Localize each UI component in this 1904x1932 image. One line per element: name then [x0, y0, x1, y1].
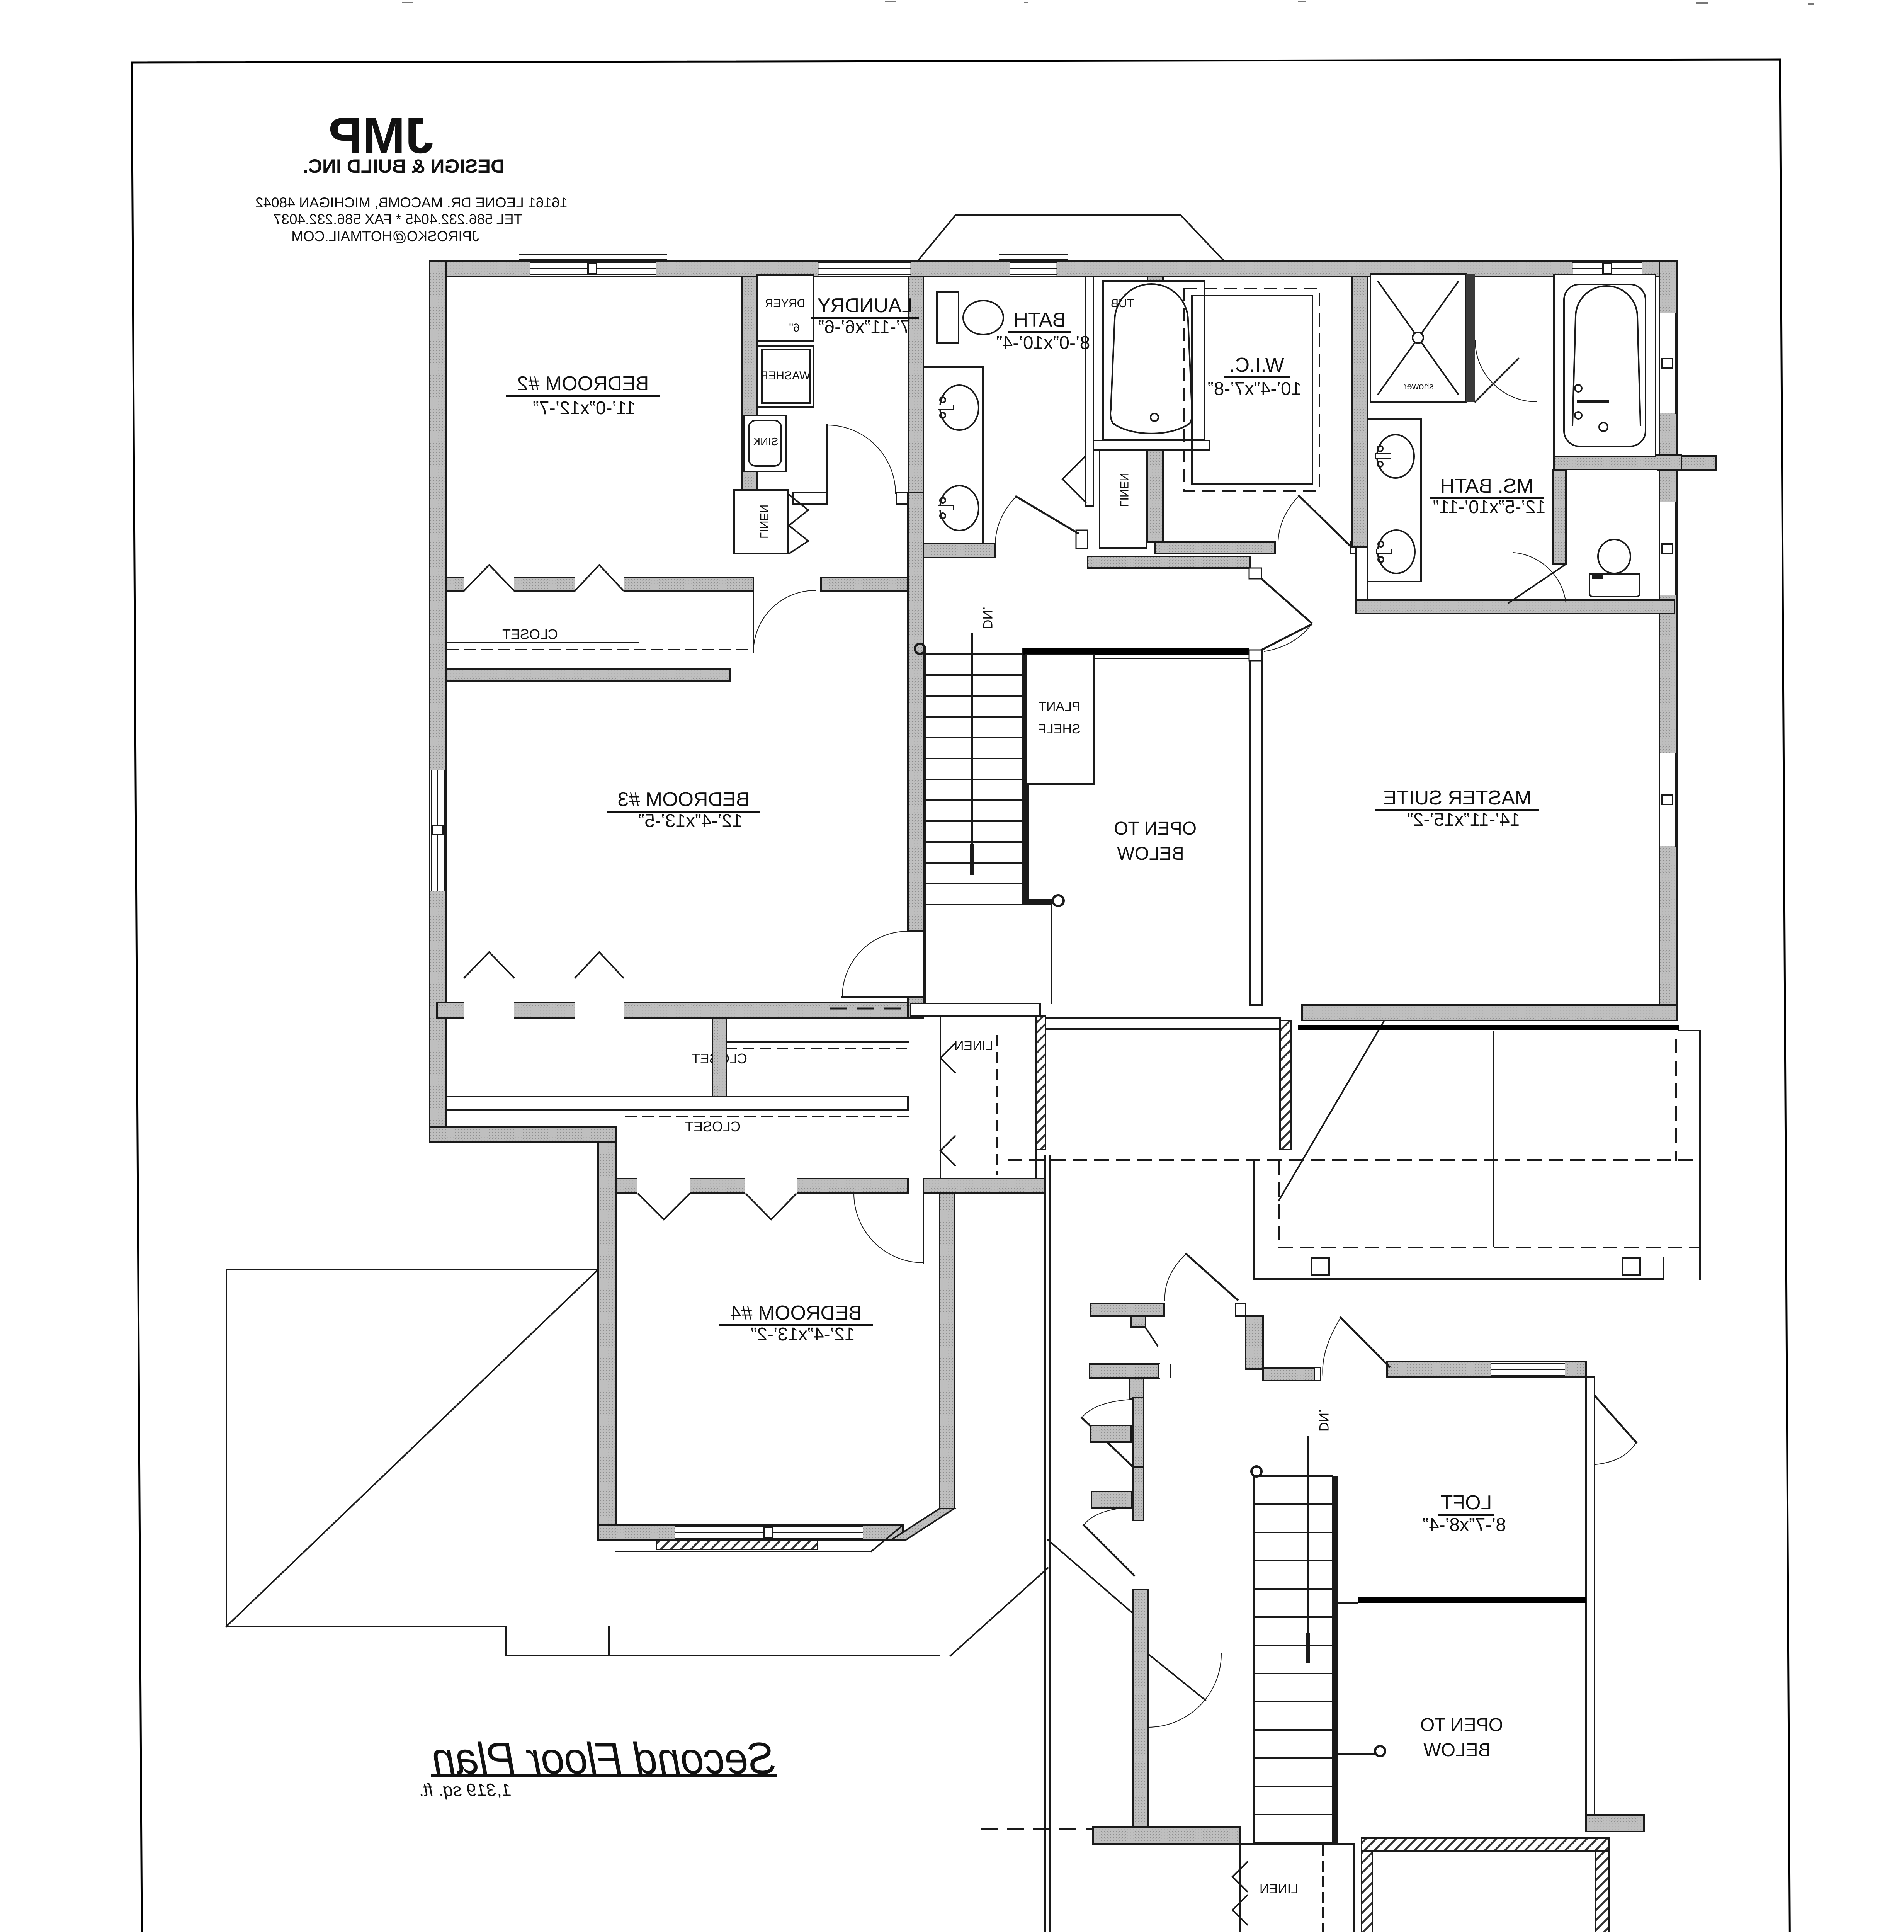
- svg-text:OPEN TO: OPEN TO: [1114, 818, 1197, 839]
- svg-text:14’-11”x15’-2”: 14’-11”x15’-2”: [1407, 810, 1520, 830]
- svg-text:6": 6": [789, 321, 799, 334]
- svg-text:PLANT: PLANT: [1038, 699, 1081, 714]
- svg-text:LAUNDRY: LAUNDRY: [817, 294, 913, 317]
- svg-text:1,319 sq. ft.: 1,319 sq. ft.: [418, 1780, 511, 1800]
- svg-text:MS. BATH: MS. BATH: [1440, 475, 1533, 497]
- svg-text:BEDROOM #3: BEDROOM #3: [618, 788, 750, 811]
- svg-text:MASTER SUITE: MASTER SUITE: [1383, 787, 1532, 809]
- svg-text:8’-0”x10’-4”: 8’-0”x10’-4”: [996, 333, 1090, 353]
- svg-text:BEDROOM #2: BEDROOM #2: [517, 372, 649, 395]
- svg-text:LINEN: LINEN: [1260, 1882, 1298, 1896]
- svg-text:W.I.C.: W.I.C.: [1229, 354, 1284, 376]
- svg-text:8’-7”x8’-4”: 8’-7”x8’-4”: [1423, 1515, 1506, 1535]
- svg-text:12’-4”x13’-2”: 12’-4”x13’-2”: [751, 1324, 855, 1345]
- svg-text:LOFT: LOFT: [1441, 1492, 1492, 1514]
- svg-text:SINK: SINK: [753, 435, 779, 447]
- svg-text:11’-0”x12’-7”: 11’-0”x12’-7”: [533, 398, 636, 418]
- svg-text:10’-4”x7’-8”: 10’-4”x7’-8”: [1208, 379, 1302, 399]
- svg-text:DN.: DN.: [980, 606, 995, 629]
- svg-text:SHELF: SHELF: [1038, 722, 1081, 736]
- svg-text:OPEN TO: OPEN TO: [1420, 1715, 1503, 1735]
- svg-text:BATH: BATH: [1014, 309, 1066, 331]
- svg-text:TUB: TUB: [1111, 297, 1134, 310]
- svg-text:BELOW: BELOW: [1423, 1740, 1491, 1760]
- svg-text:LINEN: LINEN: [1118, 473, 1130, 507]
- svg-text:LINEN: LINEN: [758, 505, 770, 539]
- svg-text:12’-4”x13’-5”: 12’-4”x13’-5”: [638, 811, 742, 831]
- svg-text:DN.: DN.: [1316, 1409, 1331, 1432]
- svg-text:BEDROOM #4: BEDROOM #4: [730, 1302, 862, 1324]
- svg-text:TEL 586.232.4045 * FAX 586.232: TEL 586.232.4045 * FAX 586.232.4037: [274, 211, 523, 227]
- svg-text:7’-11”x6’-6”: 7’-11”x6’-6”: [818, 317, 910, 337]
- svg-text:DESIGN & BUILD INC.: DESIGN & BUILD INC.: [303, 155, 505, 177]
- svg-text:DRYER: DRYER: [765, 297, 805, 310]
- svg-text:CLOSET: CLOSET: [685, 1119, 741, 1134]
- svg-text:LINEN: LINEN: [954, 1039, 993, 1053]
- svg-text:JPIROSKO@HOTMAIL.COM: JPIROSKO@HOTMAIL.COM: [291, 228, 479, 244]
- svg-text:CLOSET: CLOSET: [502, 626, 558, 642]
- svg-text:BELOW: BELOW: [1117, 844, 1184, 864]
- svg-text:WASHER: WASHER: [760, 369, 811, 382]
- svg-text:12’-5”x10’-11”: 12’-5”x10’-11”: [1433, 497, 1546, 517]
- svg-text:16161 LEONE DR. MACOMB, MICHIG: 16161 LEONE DR. MACOMB, MICHIGAN 48042: [255, 195, 568, 211]
- svg-text:shower: shower: [1404, 381, 1433, 392]
